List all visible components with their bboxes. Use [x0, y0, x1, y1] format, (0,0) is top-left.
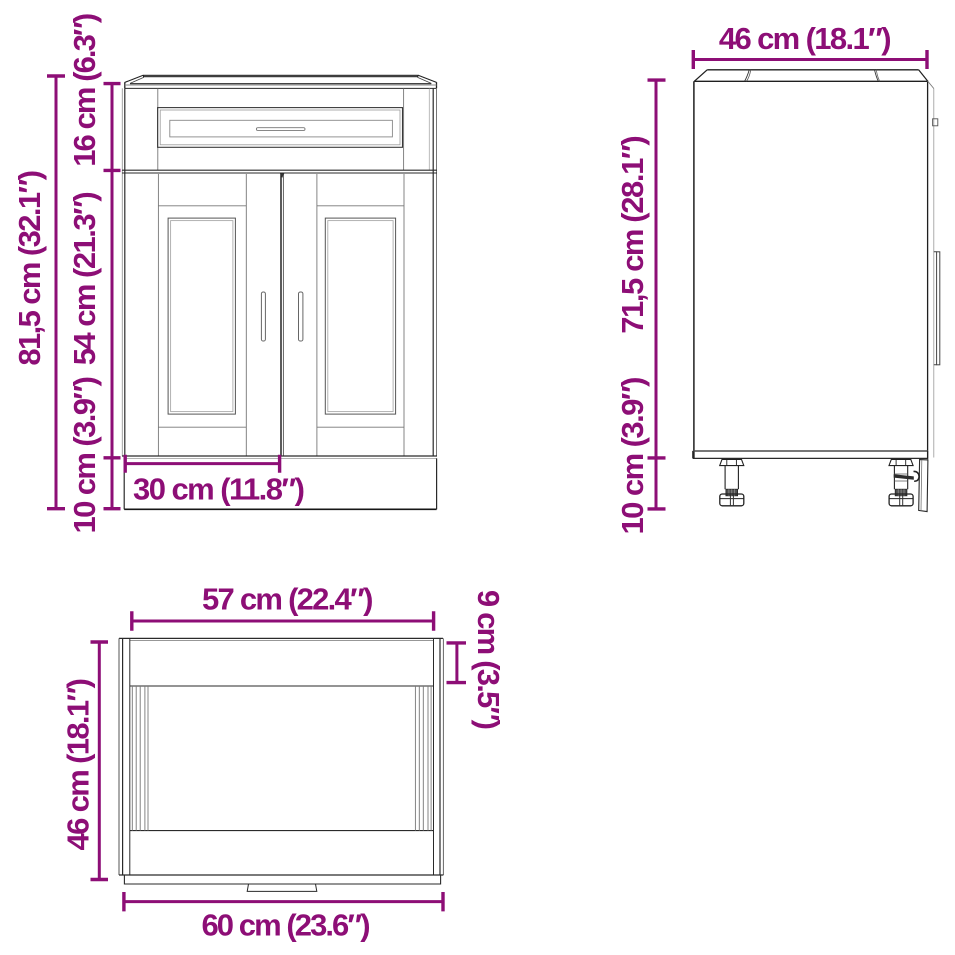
svg-text:54 cm (21.3″): 54 cm (21.3″) [67, 191, 102, 365]
svg-text:30 cm (11.8″): 30 cm (11.8″) [133, 472, 305, 507]
svg-text:10 cm (3.9″): 10 cm (3.9″) [67, 376, 102, 534]
svg-text:81,5 cm (32.1″): 81,5 cm (32.1″) [12, 170, 47, 366]
svg-text:71,5 cm (28.1″): 71,5 cm (28.1″) [615, 135, 650, 334]
svg-text:60 cm (23.6″): 60 cm (23.6″) [202, 907, 371, 942]
svg-text:46 cm (18.1″): 46 cm (18.1″) [719, 21, 892, 56]
svg-text:46 cm (18.1″): 46 cm (18.1″) [61, 678, 96, 851]
svg-text:16 cm (6.3″): 16 cm (6.3″) [67, 13, 102, 167]
svg-text:57 cm (22.4″): 57 cm (22.4″) [202, 581, 374, 616]
svg-text:10 cm (3.9″): 10 cm (3.9″) [615, 377, 650, 535]
svg-text:9 cm (3.5″): 9 cm (3.5″) [471, 590, 506, 730]
